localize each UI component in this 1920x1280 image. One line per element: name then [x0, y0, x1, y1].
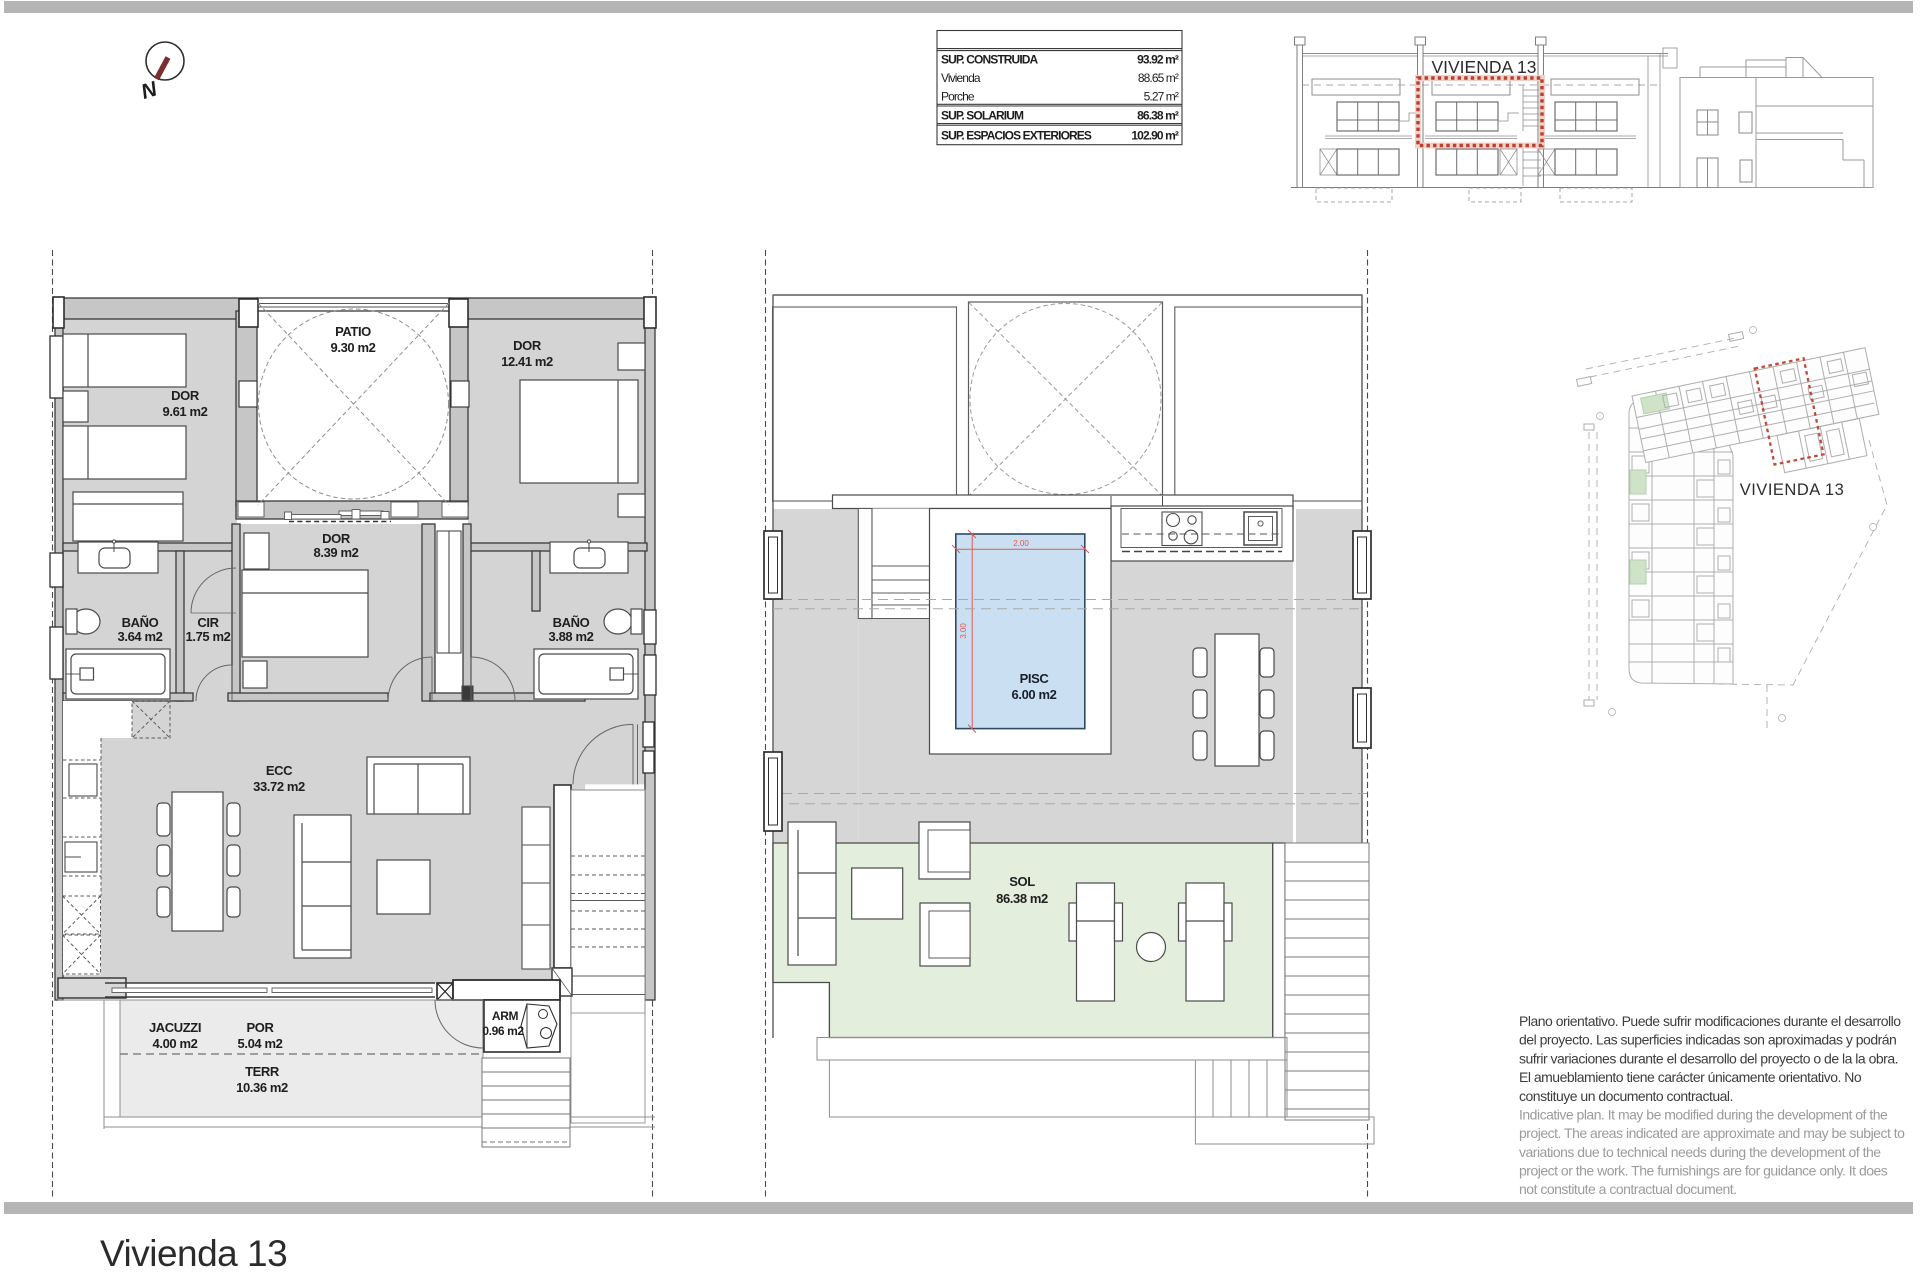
svg-text:not constitute a contractual d: not constitute a contractual document.	[1519, 1181, 1737, 1197]
svg-text:5.04 m2: 5.04 m2	[238, 1036, 283, 1051]
svg-text:86.38 m²: 86.38 m²	[1137, 109, 1179, 123]
svg-text:BAÑO: BAÑO	[122, 615, 159, 630]
svg-text:TERR: TERR	[245, 1064, 280, 1079]
svg-text:Vivienda: Vivienda	[941, 71, 981, 85]
svg-text:project. The areas indicated a: project. The areas indicated are approxi…	[1519, 1125, 1905, 1141]
svg-text:ECC: ECC	[266, 763, 293, 778]
svg-text:N: N	[138, 77, 160, 104]
svg-text:VIVIENDA 13: VIVIENDA 13	[1740, 481, 1845, 499]
svg-text:DOR: DOR	[322, 531, 351, 546]
svg-text:Vivienda 13: Vivienda 13	[100, 1233, 287, 1274]
svg-text:12.41 m2: 12.41 m2	[501, 354, 553, 369]
svg-text:DOR: DOR	[171, 388, 200, 403]
svg-text:9.30 m2: 9.30 m2	[331, 340, 376, 355]
svg-text:SUP. SOLARIUM: SUP. SOLARIUM	[941, 109, 1024, 123]
svg-text:8.39 m2: 8.39 m2	[314, 545, 359, 560]
svg-text:SOL: SOL	[1009, 874, 1035, 889]
svg-text:6.00 m2: 6.00 m2	[1012, 687, 1057, 702]
svg-text:1.75 m2: 1.75 m2	[186, 629, 231, 644]
svg-text:CIR: CIR	[197, 615, 219, 630]
svg-text:4.00 m2: 4.00 m2	[153, 1036, 198, 1051]
svg-text:constituye un documento contra: constituye un documento contractual.	[1519, 1088, 1733, 1104]
svg-text:PATIO: PATIO	[335, 324, 371, 339]
svg-text:10.36 m2: 10.36 m2	[236, 1080, 288, 1095]
svg-text:del proyecto. Las superficies: del proyecto. Las superficies indicadas …	[1519, 1032, 1896, 1048]
svg-text:Indicative plan. It may be mod: Indicative plan. It may be modified duri…	[1519, 1106, 1888, 1122]
svg-text:9.61 m2: 9.61 m2	[163, 404, 208, 419]
svg-text:JACUZZI: JACUZZI	[149, 1020, 201, 1035]
svg-text:Porche: Porche	[941, 90, 975, 104]
svg-text:3.88 m2: 3.88 m2	[549, 629, 594, 644]
svg-text:VIVIENDA 13: VIVIENDA 13	[1431, 57, 1536, 77]
svg-text:project or the work. The furni: project or the work. The furnishings are…	[1519, 1163, 1888, 1179]
svg-text:Plano orientativo. Puede sufri: Plano orientativo. Puede sufrir modifica…	[1519, 1013, 1901, 1029]
svg-text:3.00: 3.00	[959, 623, 968, 639]
svg-text:BAÑO: BAÑO	[553, 615, 590, 630]
svg-text:ARM: ARM	[492, 1009, 519, 1023]
svg-text:102.90 m²: 102.90 m²	[1131, 129, 1179, 143]
svg-text:variations due to technical ne: variations due to technical needs during…	[1519, 1144, 1881, 1160]
svg-text:sufrir variaciones durante el: sufrir variaciones durante el desarrollo…	[1519, 1050, 1898, 1066]
svg-text:DOR: DOR	[513, 338, 542, 353]
svg-text:3.64 m2: 3.64 m2	[118, 629, 163, 644]
svg-text:0.96 m2: 0.96 m2	[482, 1024, 524, 1038]
svg-text:El amueblamiento tiene carácte: El amueblamiento tiene carácter únicamen…	[1519, 1069, 1862, 1085]
svg-text:5.27 m²: 5.27 m²	[1144, 90, 1179, 104]
svg-text:SUP. ESPACIOS EXTERIORES: SUP. ESPACIOS EXTERIORES	[941, 129, 1092, 143]
svg-text:33.72 m2: 33.72 m2	[253, 779, 305, 794]
svg-text:PISC: PISC	[1020, 671, 1050, 686]
svg-text:86.38 m2: 86.38 m2	[996, 891, 1048, 906]
svg-text:93.92 m²: 93.92 m²	[1137, 53, 1179, 67]
svg-text:88.65 m²: 88.65 m²	[1138, 71, 1179, 85]
svg-text:SUP. CONSTRUIDA: SUP. CONSTRUIDA	[941, 53, 1039, 67]
svg-text:2.00: 2.00	[1013, 539, 1029, 548]
svg-text:POR: POR	[247, 1020, 275, 1035]
